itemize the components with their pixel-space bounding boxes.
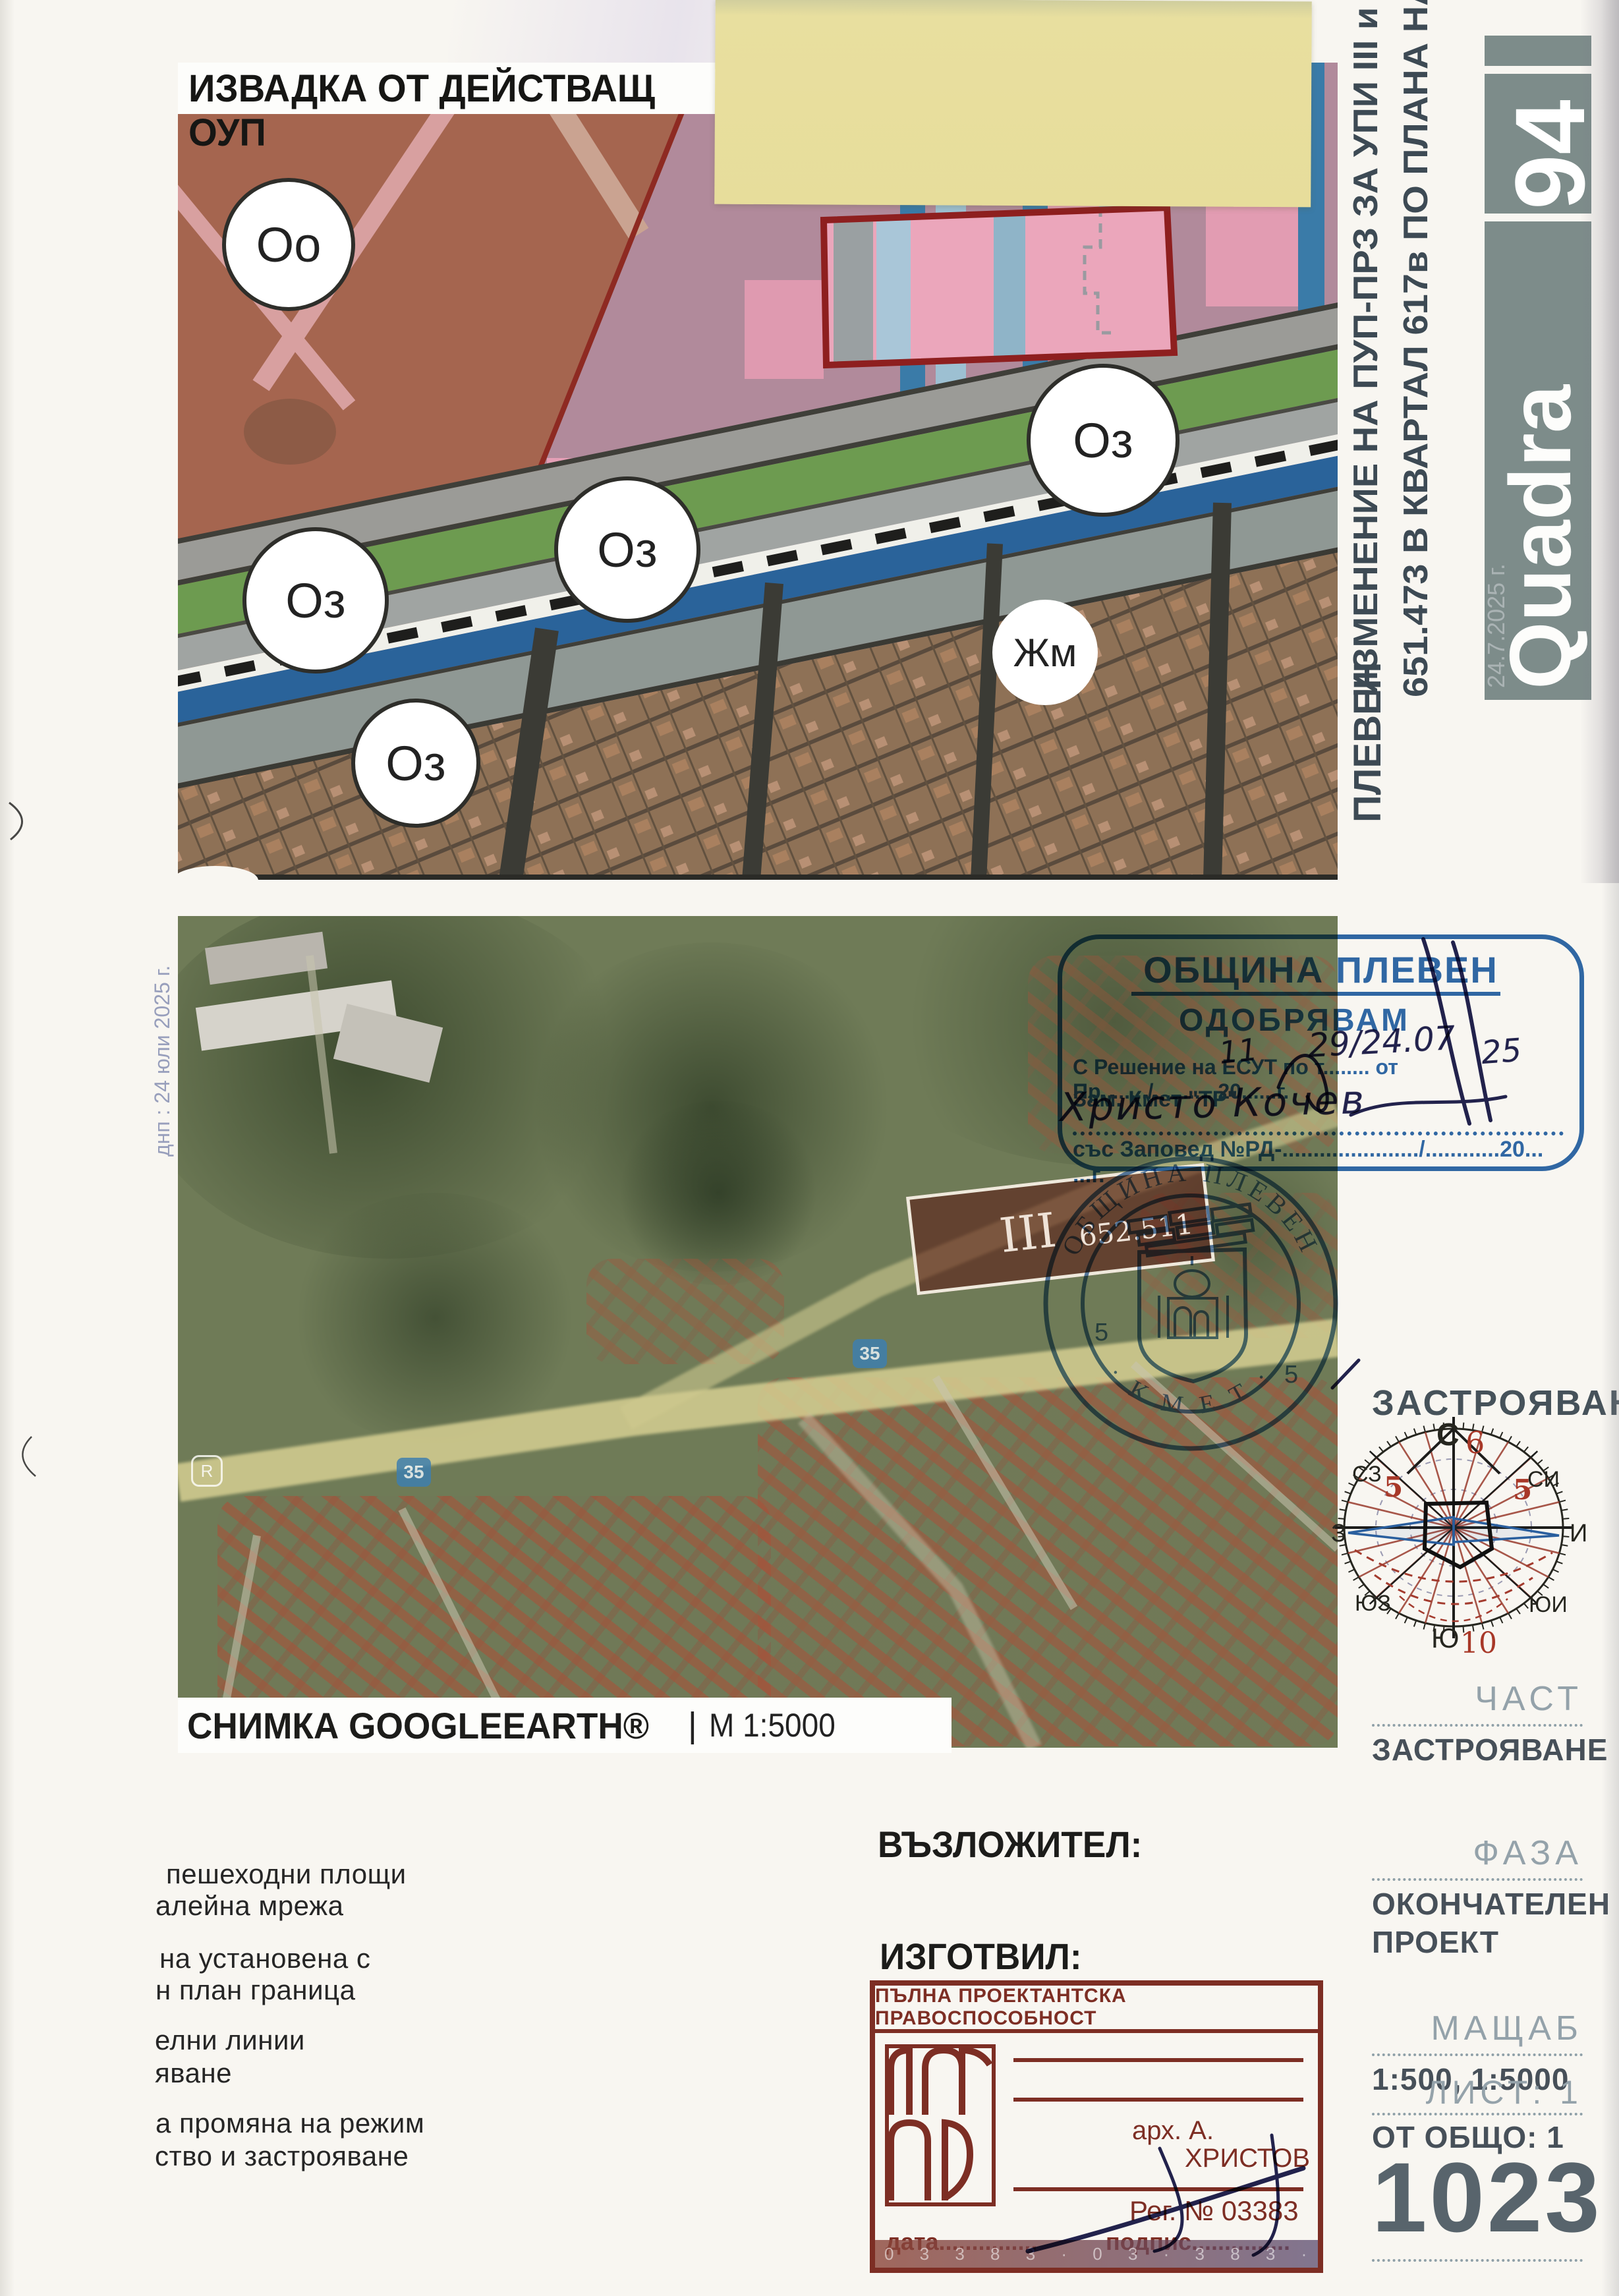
map-title: ИЗВАДКА ОТ ДЕЙСТВАЩ ОУП <box>188 67 701 155</box>
compass-n: С <box>1436 1417 1460 1453</box>
map-title-band: ИЗВАДКА ОТ ДЕЙСТВАЩ ОУП <box>178 63 717 114</box>
legend-line: ство и застрояване <box>155 2140 409 2172</box>
scan-fold-note: днп : 24 юли 2025 г. <box>150 965 175 1157</box>
zone-label: Оз <box>285 573 346 629</box>
arch-reg-number: Рег. № 03383 <box>1129 2195 1299 2227</box>
phase-value-2: ПРОЕКТ <box>1372 1924 1499 1960</box>
legend-line: а промяна на режим <box>156 2108 424 2139</box>
logo-date-watermark: 24.7.2025 г. <box>1483 563 1510 688</box>
logo-block-sliver <box>1485 36 1591 66</box>
compass-num-right: 5 <box>1513 1474 1532 1506</box>
zone-circle-oz-1: Оз <box>242 527 389 674</box>
compass-se: ЮИ <box>1529 1592 1568 1618</box>
client-label: ВЪЗЛОЖИТЕЛ: <box>878 1823 1142 1866</box>
arch-stamp-header: ПЪЛНА ПРОЕКТАНТСКА ПРАВОСПОСОБНОСТ <box>875 1986 1318 2033</box>
arch-name-line2: ХРИСТОВ <box>1185 2144 1310 2173</box>
route-shield-35: 35 <box>397 1458 431 1487</box>
round-stamp-left-number: 5 <box>1094 1319 1108 1346</box>
stamp-approve: ОДОБРЯВАМ <box>1062 1002 1527 1039</box>
handwriting-name: Христо Кочев <box>1059 1077 1367 1131</box>
handwriting-protocol-date: 29/24.07 <box>1307 1019 1456 1065</box>
caption-title: СНИМКА GOOGLEEARTH® <box>187 1704 649 1747</box>
zone-label: Оз <box>385 735 446 791</box>
divider <box>1372 2053 1583 2056</box>
coat-of-arms <box>1127 1201 1255 1381</box>
handwriting-year: 25 <box>1480 1032 1523 1072</box>
caption-scale: М 1:5000 <box>709 1706 836 1744</box>
legend-line: алейна мрежа <box>156 1890 343 1922</box>
rule <box>1013 2098 1303 2102</box>
zone-label: Оз <box>1073 413 1133 469</box>
mayor-round-stamp: ОБЩИНА ПЛЕВЕН · К М Е Т · 5 5 <box>1039 1152 1342 1455</box>
zone-label: Оо <box>256 217 322 273</box>
stamp-underline <box>1131 992 1500 996</box>
round-stamp-bottom-text: · К М Е Т · <box>1102 1360 1279 1421</box>
kab-logo <box>884 2042 996 2207</box>
zone-label: Жм <box>1013 630 1077 675</box>
part-value: ЗАСТРОЯВАНЕ <box>1372 1732 1608 1767</box>
map-r-icon: R <box>191 1455 223 1487</box>
divider <box>1372 1878 1583 1881</box>
zone-circle-oz-4: Оз <box>1027 364 1179 517</box>
zone-circle-zhm: Жм <box>992 600 1098 705</box>
route-shield-35: 35 <box>853 1339 887 1368</box>
project-title-city: ПЛЕВЕН <box>1346 662 1390 822</box>
page-edge-shadow <box>1601 0 1619 2296</box>
compass-num-bottom: 10 <box>1460 1626 1497 1660</box>
rule <box>1013 2058 1303 2062</box>
phase-value-1: ОКОНЧАТЕЛЕН <box>1372 1886 1610 1922</box>
svg-text:· К М Е Т ·: · К М Е Т · <box>1102 1360 1279 1421</box>
part-label: ЧАСТ <box>1371 1679 1583 1719</box>
compass-num-top: 6 <box>1465 1425 1485 1460</box>
zone-circle-oz-2: Оз <box>554 476 700 623</box>
legend-line: елни линии <box>155 2024 305 2056</box>
document-number: 1023 <box>1372 2140 1603 2254</box>
project-title-line2: 651.473 В КВАРТАЛ 617в ПО ПЛАНА НА ГРАД <box>1396 0 1435 697</box>
compass-ne: СИ <box>1527 1467 1560 1493</box>
divider <box>1372 2113 1583 2115</box>
divider <box>1372 1724 1583 1727</box>
phase-label: ФАЗА <box>1371 1833 1583 1873</box>
stamp-municipality: ОБЩИНА ПЛЕВЕН <box>1062 948 1579 991</box>
compass-sw: ЮЗ <box>1355 1591 1391 1617</box>
project-title-line1: ИЗМЕНЕНИЕ НА ПУП-ПРЗ ЗА УПИ III и ПИ <box>1346 0 1385 697</box>
author-label: ИЗГОТВИЛ: <box>880 1935 1082 1978</box>
zone-label: Оз <box>597 522 658 578</box>
sticky-note <box>714 0 1312 207</box>
zone-circle-oz-3: Оз <box>351 699 480 828</box>
handwriting-item-number: 11 <box>1217 1031 1259 1071</box>
logo-number: 94 <box>1493 100 1607 210</box>
sheet-label: ЛИСТ: 1 <box>1371 2073 1583 2111</box>
rule <box>1013 2187 1303 2191</box>
compass-e: И <box>1570 1520 1587 1548</box>
round-stamp-right-number: 5 <box>1284 1361 1298 1389</box>
compass-w: З <box>1331 1520 1346 1548</box>
scan-notch <box>173 866 258 895</box>
legend-line: н план граница <box>156 1974 355 2006</box>
compass-s: Ю <box>1431 1622 1459 1654</box>
scanned-plan-sheet: Оо Оз Оз Оз Оз Жм ИЗВАДКА ОТ ДЕЙСТВАЩ ОУ… <box>0 0 1619 2296</box>
legend-line: на установена с <box>159 1943 370 1974</box>
stamp-serial-band: 0 3 3 8 3 · 0 3 · 3 8 3 · 0 3 3 8 3 <box>875 2240 1318 2268</box>
zone-circle-oo: Оо <box>222 178 355 311</box>
legend-line: пешеходни площи <box>166 1858 407 1890</box>
photo-caption: СНИМКА GOOGLEEARTH® | М 1:5000 <box>178 1698 952 1753</box>
caption-separator: | <box>688 1705 697 1746</box>
arch-name-line1: арх. А. <box>1132 2116 1214 2146</box>
compass-num-left: 5 <box>1384 1471 1403 1503</box>
legend-line: яване <box>155 2057 232 2089</box>
architect-stamp: ПЪЛНА ПРОЕКТАНТСКА ПРАВОСПОСОБНОСТ арх. … <box>870 1980 1323 2273</box>
divider <box>1372 2259 1583 2262</box>
compass-nw: СЗ <box>1352 1462 1382 1487</box>
page-edge-shadow-left <box>0 0 14 2296</box>
scale-label: МАЩАБ <box>1371 2009 1583 2048</box>
